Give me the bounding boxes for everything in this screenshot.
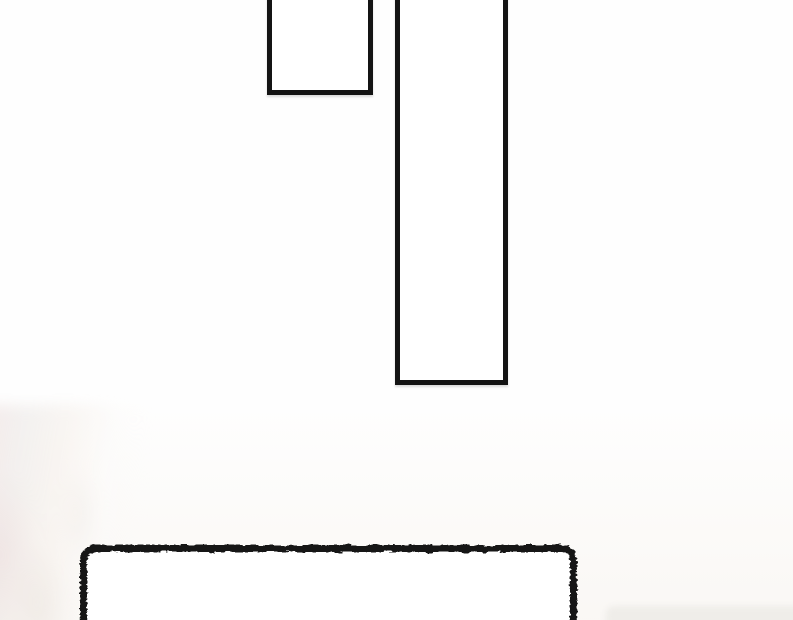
comic-page	[0, 0, 793, 620]
panel-bottom-border	[84, 549, 574, 620]
background-corner-patch	[606, 606, 793, 620]
comic-panel-bottom	[80, 545, 577, 620]
comic-panel-top-center	[395, 0, 508, 385]
comic-panel-top-left	[267, 0, 373, 95]
distressed-panel-frame	[80, 545, 577, 620]
